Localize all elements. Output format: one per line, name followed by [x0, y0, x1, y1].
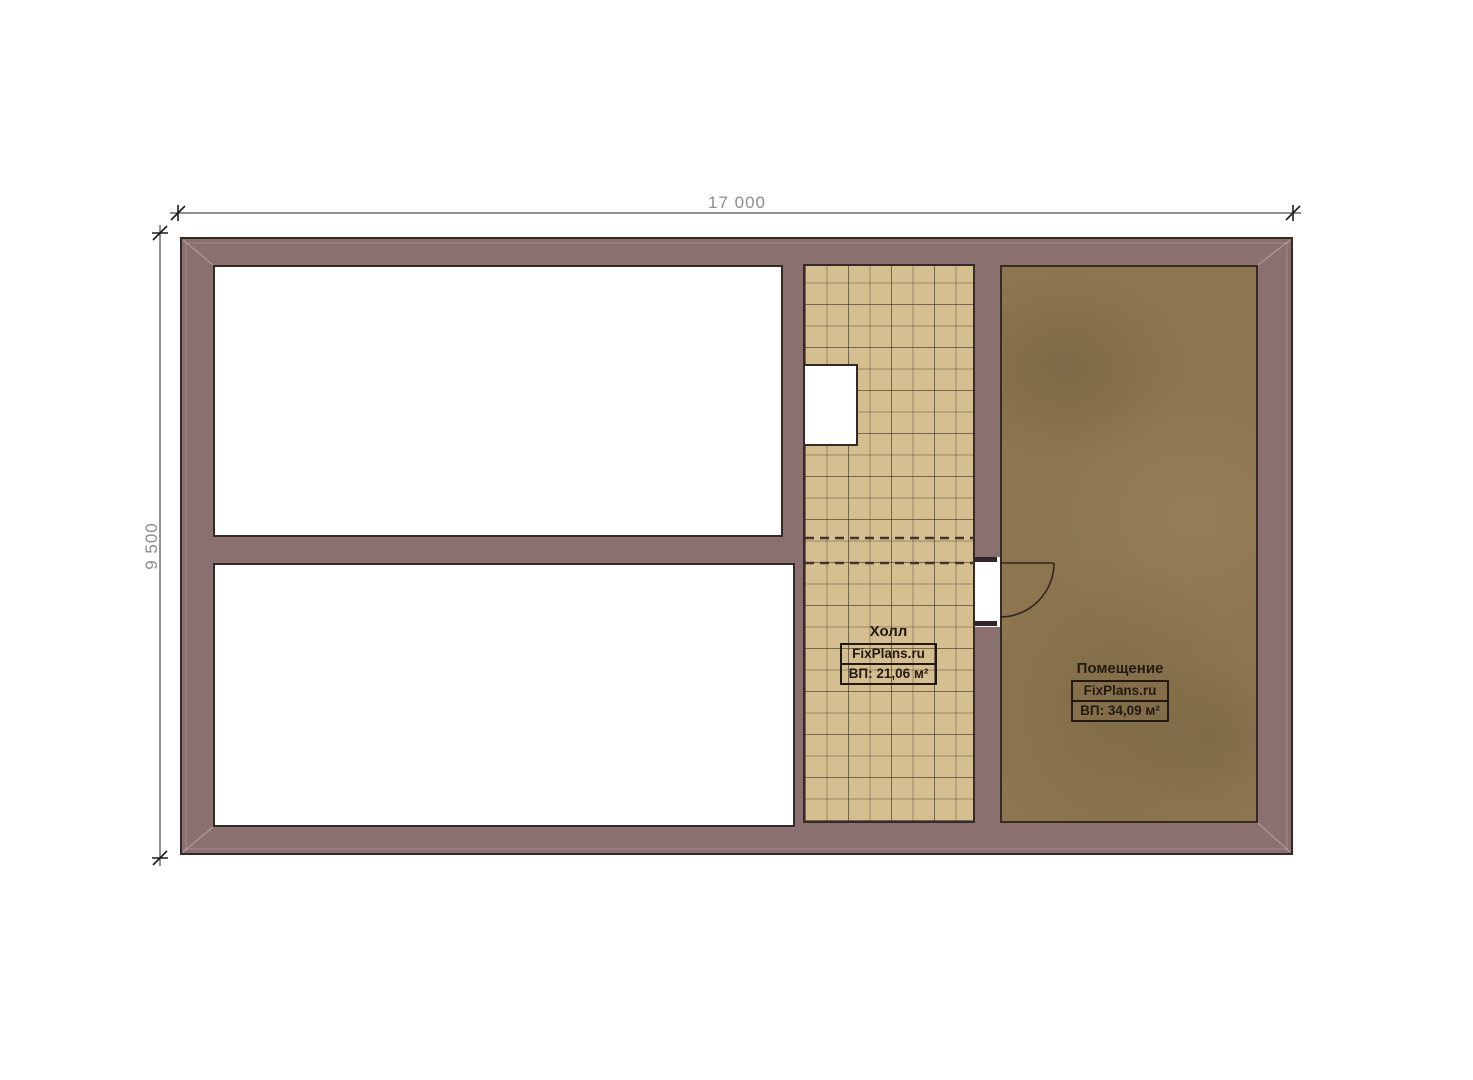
premise-info-box: FixPlans.ru ВП: 34,09 м² — [1071, 680, 1169, 722]
hall-area: ВП: 21,06 м² — [842, 663, 935, 683]
premise-label: Помещение FixPlans.ru ВП: 34,09 м² — [1071, 660, 1169, 722]
plan-linework — [0, 0, 1473, 1080]
wall-bevel-line — [186, 243, 1287, 849]
premise-brand: FixPlans.ru — [1073, 682, 1167, 700]
door-swing-arc — [1000, 563, 1054, 617]
hall-name: Холл — [840, 623, 937, 640]
corner-miter-bottom-left — [183, 827, 213, 852]
corner-miter-bottom-right — [1258, 823, 1290, 852]
dimension-label-height: 9 500 — [142, 486, 162, 606]
hall-brand: FixPlans.ru — [842, 645, 935, 663]
corner-miter-top-right — [1258, 240, 1290, 265]
dimension-label-width: 17 000 — [677, 193, 797, 213]
premise-name: Помещение — [1071, 660, 1169, 677]
door-jamb-top — [975, 557, 997, 562]
door-opening — [975, 557, 1000, 627]
corner-miter-top-left — [183, 240, 213, 265]
floor-plan-canvas: 17 000 9 500 Холл FixPlans.ru ВП: 21,06 … — [0, 0, 1473, 1080]
hall-label: Холл FixPlans.ru ВП: 21,06 м² — [840, 623, 937, 685]
premise-area: ВП: 34,09 м² — [1073, 700, 1167, 720]
hall-info-box: FixPlans.ru ВП: 21,06 м² — [840, 643, 937, 685]
door-jamb-bottom — [975, 621, 997, 626]
